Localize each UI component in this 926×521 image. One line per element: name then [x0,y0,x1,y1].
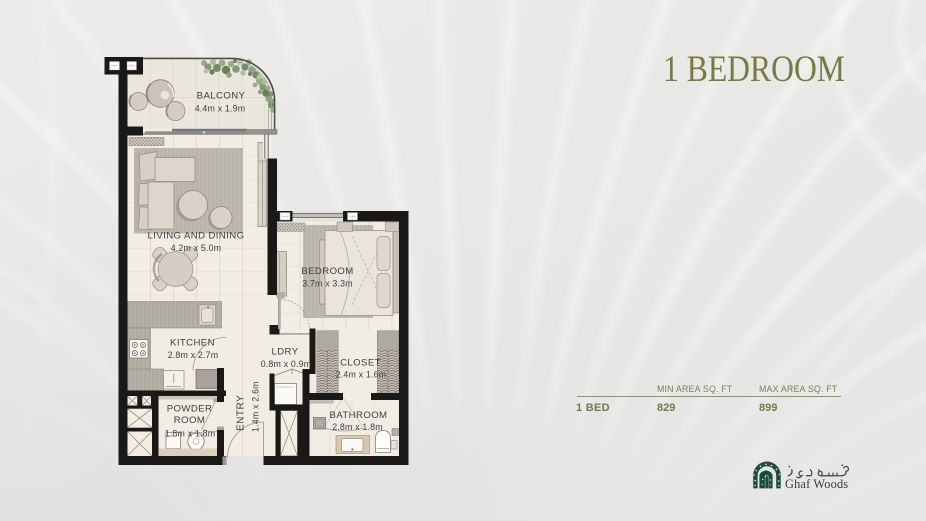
svg-text:4.2m x 5.0m: 4.2m x 5.0m [171,243,222,253]
svg-text:POWDER: POWDER [167,404,213,415]
svg-text:KITCHEN: KITCHEN [170,338,215,349]
svg-text:BALCONY: BALCONY [197,91,246,102]
svg-text:2.8m x 1.8m: 2.8m x 1.8m [332,422,383,432]
svg-text:2.4m x 1.6m: 2.4m x 1.6m [336,370,387,380]
svg-text:LIVING AND DINING: LIVING AND DINING [148,231,245,242]
svg-text:4.4m x 1.9m: 4.4m x 1.9m [195,104,246,114]
svg-text:3.7m x 3.3m: 3.7m x 3.3m [302,279,353,289]
svg-text:BEDROOM: BEDROOM [301,266,353,277]
svg-text:2.8m x 2.7m: 2.8m x 2.7m [168,350,219,360]
svg-text:CLOSET: CLOSET [340,358,381,369]
svg-text:ROOM: ROOM [174,415,205,426]
svg-text:BATHROOM: BATHROOM [330,410,388,421]
svg-text:1.4m x 2.6m: 1.4m x 2.6m [251,381,261,432]
svg-text:0.8m x 0.9m: 0.8m x 0.9m [261,359,312,369]
svg-text:1.8m x 1.8m: 1.8m x 1.8m [165,429,216,439]
svg-text:ENTRY: ENTRY [236,395,247,431]
svg-text:LDRY: LDRY [271,347,298,358]
